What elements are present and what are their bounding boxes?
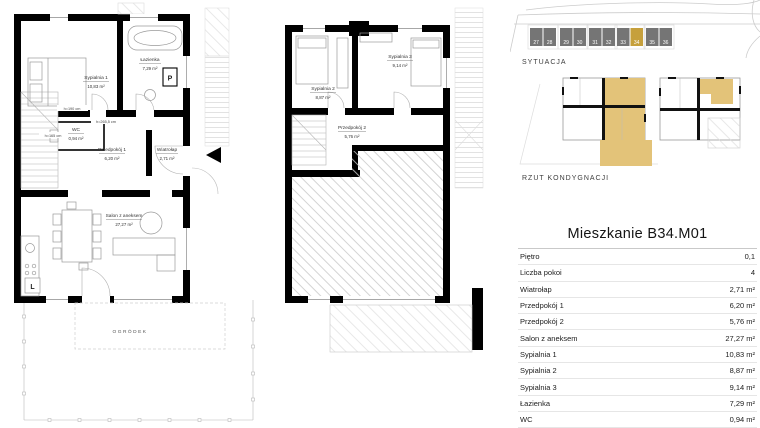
svg-text:31: 31	[592, 40, 598, 46]
neighbor-strip-right	[455, 8, 483, 188]
table-row: Sypialnia 39,14 m²	[518, 379, 757, 395]
mini-plan-ground	[562, 77, 652, 166]
garden-label: OGRÓDEK	[112, 328, 147, 335]
room-area-wc: 0,94 m²	[69, 136, 84, 141]
room-label-wiatrolap: Wiatrołap	[157, 147, 178, 153]
info-panel: 27 28 29 30 31 32 33 34 35 36 SYTUACJA	[510, 0, 760, 428]
fridge-label: L	[30, 284, 35, 291]
svg-text:32: 32	[606, 40, 612, 46]
height-note-165: h=165 cm	[45, 134, 62, 138]
table-row: Przedpokój 16,20 m²	[518, 298, 757, 314]
table-row: Sypialnia 110,83 m²	[518, 347, 757, 363]
room-label-sypialnia1: Sypialnia 1	[84, 75, 108, 81]
terrace-roof	[330, 305, 472, 352]
room-area-sypialnia1: 10,83 m²	[87, 84, 105, 89]
svg-text:27: 27	[533, 40, 539, 46]
entrance-arrow-icon	[206, 147, 221, 163]
room-label-sypialnia2: Sypialnia 2	[311, 86, 335, 92]
upper-floor-stairs	[292, 115, 326, 165]
room-area-wiatrolap: 2,71 m²	[160, 156, 175, 161]
room-label-przedpokoj2: Przedpokój 2	[338, 125, 366, 131]
site-buildings: 27 28 29 30 31 32 33 34 35 36	[528, 25, 674, 49]
svg-text:29: 29	[563, 40, 569, 46]
svg-text:28: 28	[547, 40, 553, 46]
svg-text:33: 33	[620, 40, 626, 46]
upper-floor-plan: Sypialnia 2 8,87 m² Sypialnia 3 9,14 m² …	[285, 8, 483, 352]
table-row: WC0,94 m²	[518, 412, 757, 428]
room-area-przedpokoj2: 5,76 m²	[345, 134, 360, 139]
upper-floor-door-arcs	[328, 92, 410, 108]
mini-garden-highlight	[600, 140, 652, 166]
table-row: Liczba pokoi4	[518, 265, 757, 281]
room-area-lazienka: 7,29 m²	[143, 66, 158, 71]
table-row: Salon z aneksem27,27 m²	[518, 330, 757, 346]
mini-roof-hatch	[708, 118, 740, 148]
table-row: Łazienka7,29 m²	[518, 396, 757, 412]
svg-text:35: 35	[649, 40, 655, 46]
floor-plan-sheet: Sypialnia 1 10,83 m² Łazienka 7,29 m² WC…	[0, 0, 760, 428]
apartment-title: Mieszkanie B34.M01	[518, 222, 757, 249]
svg-text:36: 36	[663, 40, 669, 46]
site-plan-label: SYTUACJA	[522, 59, 567, 66]
room-label-przedpokoj1: Przedpokój 1	[98, 147, 126, 153]
room-area-salon: 27,27 m²	[115, 222, 133, 227]
table-row: Wiatrołap2,71 m²	[518, 282, 757, 298]
ground-floor-plan: Sypialnia 1 10,83 m² Łazienka 7,29 m² WC…	[14, 3, 255, 422]
upper-floor-furniture	[296, 33, 441, 88]
site-plan: 27 28 29 30 31 32 33 34 35 36	[510, 0, 760, 58]
room-label-sypialnia3: Sypialnia 3	[388, 54, 412, 60]
table-row: Przedpokój 25,76 m²	[518, 314, 757, 330]
room-label-wc: WC	[72, 127, 81, 133]
height-note-2655: h=265,5 cm	[96, 120, 116, 124]
garden: OGRÓDEK	[23, 300, 255, 422]
table-row: Sypialnia 28,87 m²	[518, 363, 757, 379]
room-label-lazienka: Łazienka	[140, 57, 160, 63]
room-area-sypialnia2: 8,87 m²	[316, 95, 331, 100]
neighbor-strip-left	[205, 8, 229, 146]
mini-plan-upper	[659, 77, 741, 148]
ground-floor-stairs	[21, 92, 58, 188]
floor-location-diagrams	[510, 72, 760, 172]
room-label-salon: Salon z aneksem	[106, 213, 143, 219]
svg-text:30: 30	[577, 40, 583, 46]
room-area-przedpokoj1: 6,20 m²	[105, 156, 120, 161]
floor-diagram-label: RZUT KONDYGNACJI	[522, 175, 609, 182]
apartment-details-table: Mieszkanie B34.M01 Piętro0,1 Liczba poko…	[518, 222, 757, 428]
room-area-sypialnia3: 9,14 m²	[393, 63, 408, 68]
svg-text:34: 34	[634, 40, 640, 46]
height-note-190: h=190 cm	[64, 107, 81, 111]
entrance-path-arc	[192, 168, 218, 194]
table-row: Piętro0,1	[518, 249, 757, 265]
washing-machine-label: P	[168, 76, 173, 83]
